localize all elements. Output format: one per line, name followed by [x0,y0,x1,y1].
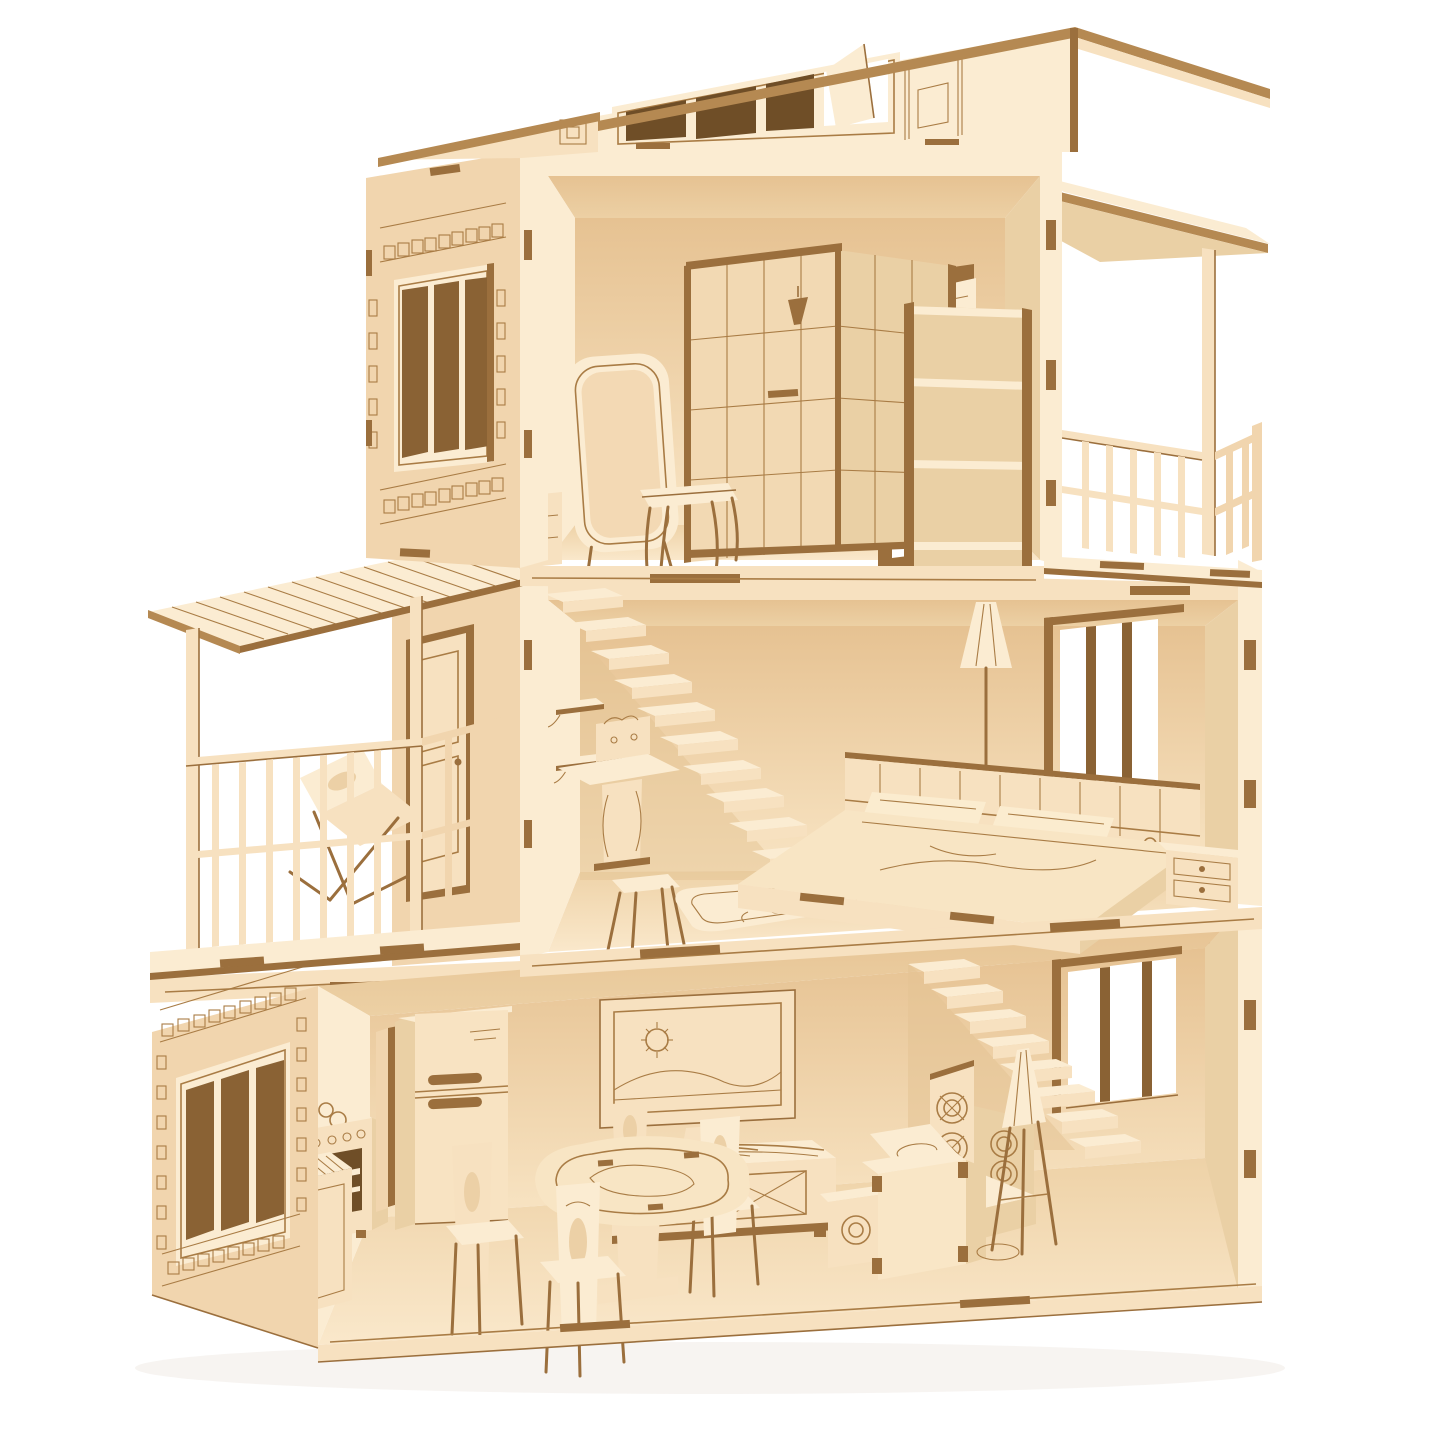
roof [378,27,1270,167]
balcony-railing [1062,422,1262,562]
roof-overhang-underside [1075,37,1270,108]
left-frame-strip [520,568,548,958]
partition-wall [376,1026,398,1212]
left-frame-strip [520,152,548,568]
nightstand [1158,842,1238,912]
roof-fascia [1070,28,1078,152]
floor-front-band [520,566,1044,588]
balcony-post [1202,248,1215,556]
shelf-unit [904,302,1032,580]
ground-shadow [135,1342,1285,1394]
tab-slot [1130,586,1190,595]
right-edge-strip [1238,908,1262,1290]
first-floor [150,908,1262,1376]
ottoman [820,1186,884,1268]
side-wall-window [176,1042,290,1266]
left-balcony [148,548,544,980]
left-wall [152,966,318,1348]
dollhouse-render [0,0,1440,1440]
roof-overhang-right [1075,27,1270,99]
second-floor [148,548,1262,980]
ceiling [548,176,1040,218]
side-wall-window [394,263,494,472]
top-frame-band [520,152,1062,176]
right-edge-strip [1238,560,1262,906]
dollhouse-photo [0,0,1440,1440]
left-wall [366,152,520,568]
refrigerator [395,1006,512,1230]
right-balcony [1040,176,1270,588]
third-floor [366,27,1270,588]
